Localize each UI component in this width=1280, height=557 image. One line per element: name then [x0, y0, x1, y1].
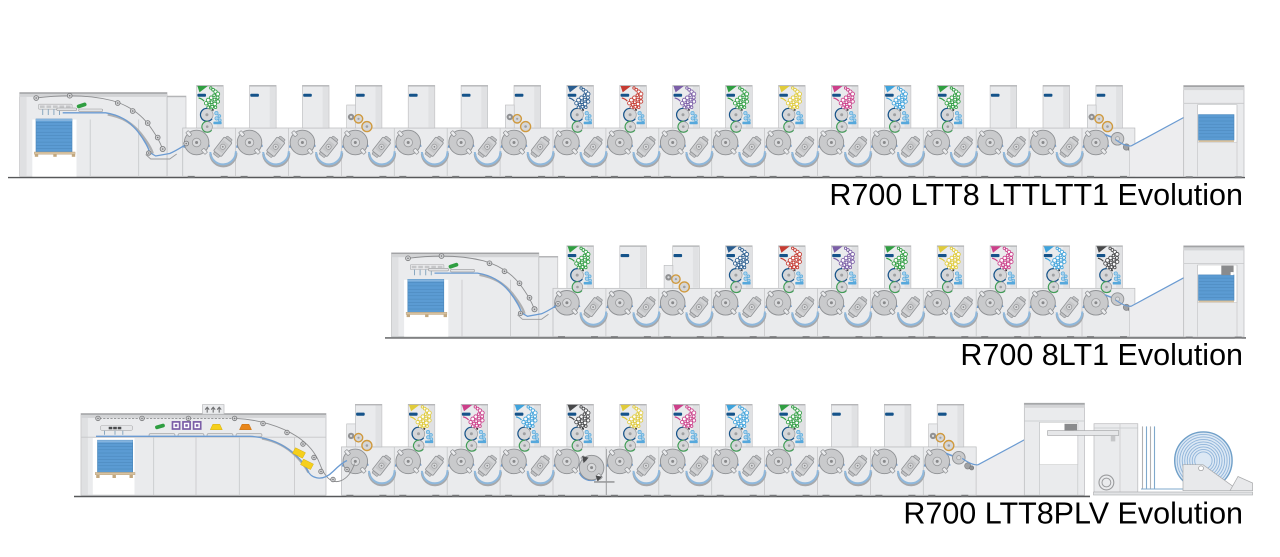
svg-text:R700 LTT8PLV Evolution: R700 LTT8PLV Evolution	[903, 497, 1243, 531]
svg-text:R700 LTT8 LTTLTT1 Evolution: R700 LTT8 LTTLTT1 Evolution	[829, 178, 1243, 212]
svg-text:R700 8LT1 Evolution: R700 8LT1 Evolution	[960, 338, 1243, 372]
